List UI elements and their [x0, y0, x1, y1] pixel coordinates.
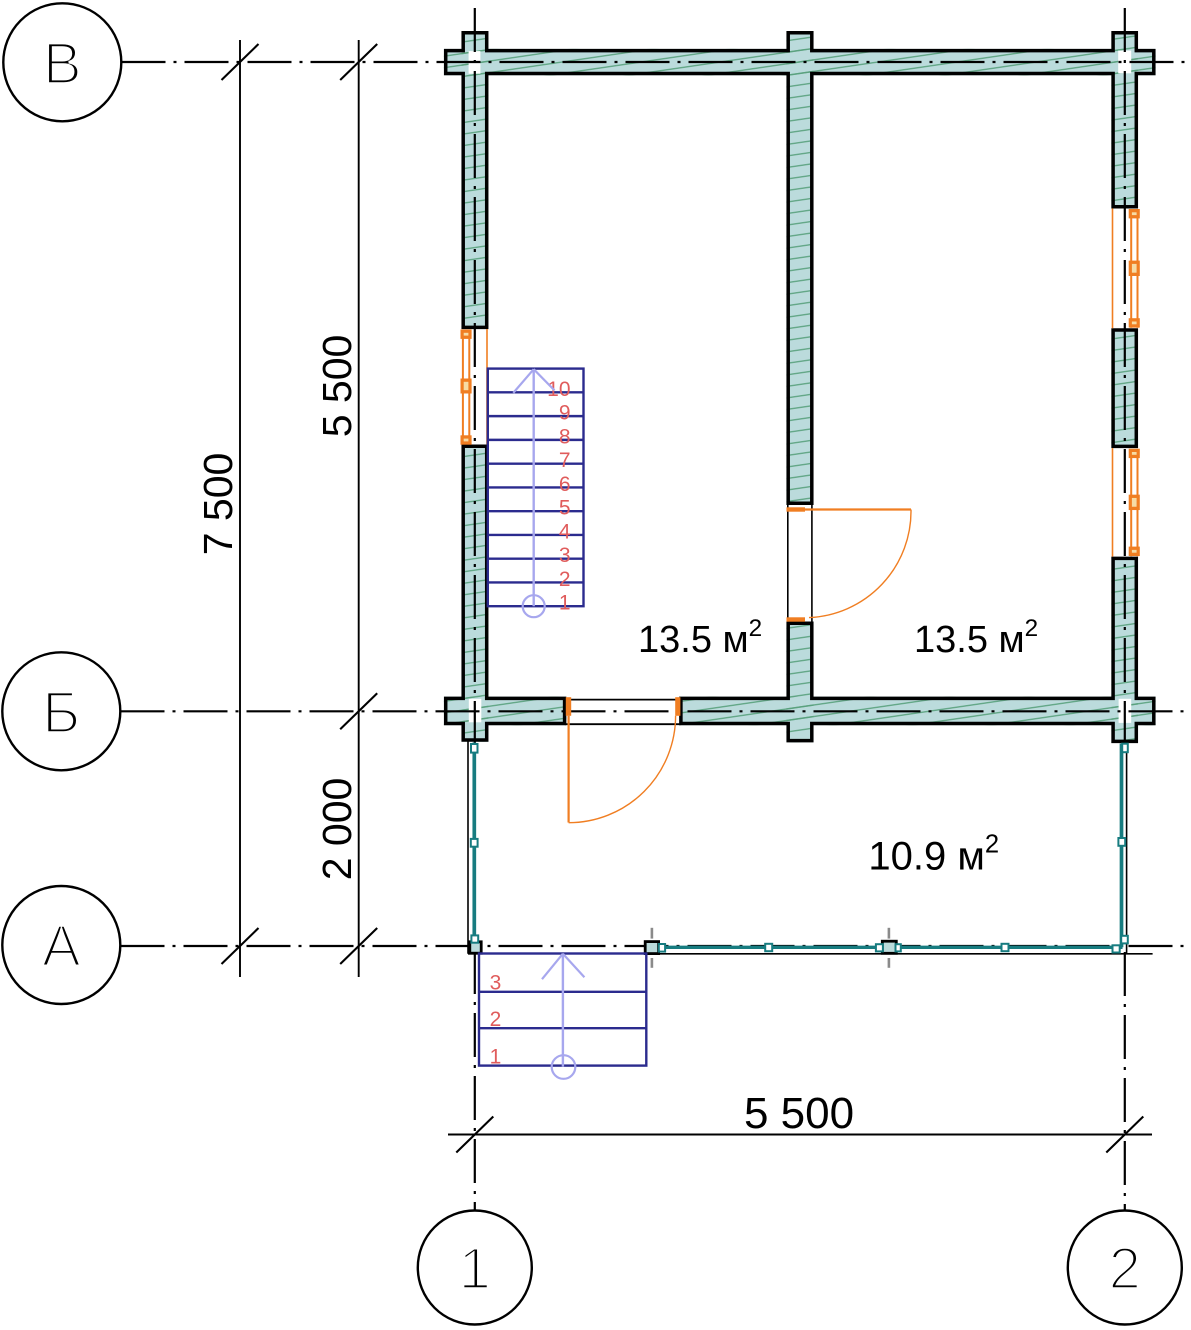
svg-text:8: 8 — [559, 425, 571, 448]
svg-text:3: 3 — [490, 972, 502, 995]
svg-text:1: 1 — [559, 592, 571, 615]
svg-text:4: 4 — [559, 520, 571, 543]
svg-text:1: 1 — [459, 1237, 491, 1302]
svg-text:5: 5 — [559, 497, 571, 520]
svg-text:1: 1 — [490, 1045, 502, 1068]
svg-text:10.9 м2: 10.9 м2 — [868, 831, 999, 879]
svg-text:3: 3 — [559, 544, 571, 567]
svg-text:2: 2 — [559, 568, 571, 591]
svg-text:Б: Б — [42, 681, 80, 746]
svg-text:5 500: 5 500 — [314, 335, 360, 438]
svg-text:7: 7 — [559, 449, 571, 472]
svg-text:2: 2 — [490, 1008, 502, 1031]
svg-text:7 500: 7 500 — [195, 453, 241, 556]
svg-text:2: 2 — [1109, 1237, 1141, 1302]
svg-text:В: В — [43, 32, 82, 97]
svg-text:13.5 м2: 13.5 м2 — [914, 615, 1038, 661]
svg-text:10: 10 — [547, 378, 570, 401]
svg-text:А: А — [42, 914, 81, 979]
svg-text:2 000: 2 000 — [314, 778, 360, 881]
svg-text:6: 6 — [559, 473, 571, 496]
svg-text:9: 9 — [559, 402, 571, 425]
svg-text:13.5 м2: 13.5 м2 — [638, 615, 762, 661]
svg-text:5 500: 5 500 — [744, 1089, 854, 1138]
